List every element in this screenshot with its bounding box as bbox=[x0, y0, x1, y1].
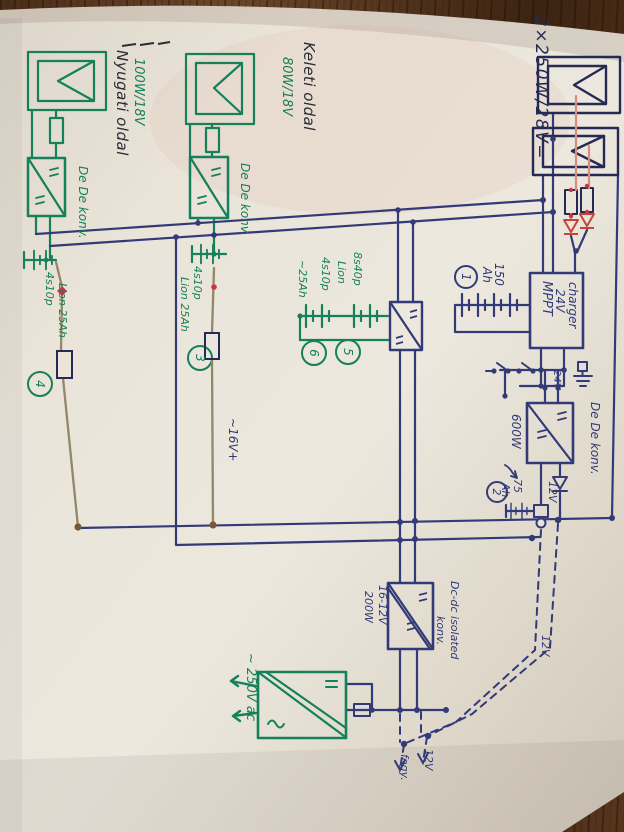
label-12v-out: 12V bbox=[546, 481, 559, 504]
label-array-spec: 2×250W/28V= bbox=[531, 16, 551, 160]
label-bank-4s10p: 4s10p bbox=[319, 257, 332, 291]
label-bat4-config: 4s10p bbox=[43, 272, 56, 306]
label-dcdc-600: De De konv. bbox=[588, 402, 602, 475]
digit-1: 1 bbox=[459, 273, 473, 281]
label-mppt-charger: charger bbox=[566, 282, 580, 329]
digit-2: 2 bbox=[490, 489, 503, 496]
label-bank-8s40p: 8s40p bbox=[351, 252, 364, 286]
label-24v: 24V bbox=[551, 370, 562, 391]
label-bat3-config: 4s10p bbox=[191, 266, 204, 300]
label-dcdc-west: De De konv. bbox=[76, 166, 90, 239]
label-bat4-type: Lion 25Ah bbox=[56, 283, 69, 338]
label-west-side: Nyugati oldal bbox=[113, 50, 131, 156]
label-12v-right: 12V bbox=[539, 635, 552, 658]
label-bat3-type: Lion 25Ah bbox=[178, 277, 191, 332]
label-inverter-out: ~ 250V ac bbox=[243, 653, 258, 721]
digit-5: 5 bbox=[341, 348, 355, 356]
digit-6: 6 bbox=[307, 349, 321, 357]
label-load-12v: 12V bbox=[422, 749, 435, 772]
label-east-side: Keleti oldal bbox=[300, 42, 318, 131]
label-west-power: 100W/18V bbox=[131, 58, 146, 127]
label-bank-25ah: ~25Ah bbox=[296, 260, 309, 298]
terminal-open-circle bbox=[537, 519, 546, 528]
paper-left-shade bbox=[0, 18, 22, 832]
label-iso-1: Dc-dc isolated bbox=[448, 581, 461, 660]
label-iso-w: 200W bbox=[362, 591, 375, 624]
digit-3: 3 bbox=[193, 354, 207, 362]
label-east-power: 80W/18V bbox=[279, 57, 294, 117]
label-mppt-24v: 24V bbox=[553, 289, 567, 313]
label-150-ah: Ah bbox=[480, 266, 494, 283]
digit-4: 4 bbox=[33, 380, 47, 388]
label-mppt: MPPT bbox=[539, 281, 554, 317]
photo-background-wood: { "colors": { "wood": "#462c18", "wood_l… bbox=[0, 0, 624, 832]
label-iso-in: 16-12V bbox=[376, 585, 389, 626]
label-dcdc-east: De De konv. bbox=[238, 163, 252, 236]
label-16v: ~16V+ bbox=[226, 418, 240, 462]
label-600w: 600W bbox=[509, 414, 523, 450]
label-bank-lion: Lion bbox=[335, 261, 348, 284]
hand-drawn-wiring-diagram: 2×250W/28V= Keleti oldal 80W/18V Nyugati… bbox=[0, 0, 624, 832]
label-iso-2: konv. bbox=[434, 616, 447, 645]
label-load-fogy: fogy. bbox=[398, 754, 411, 781]
